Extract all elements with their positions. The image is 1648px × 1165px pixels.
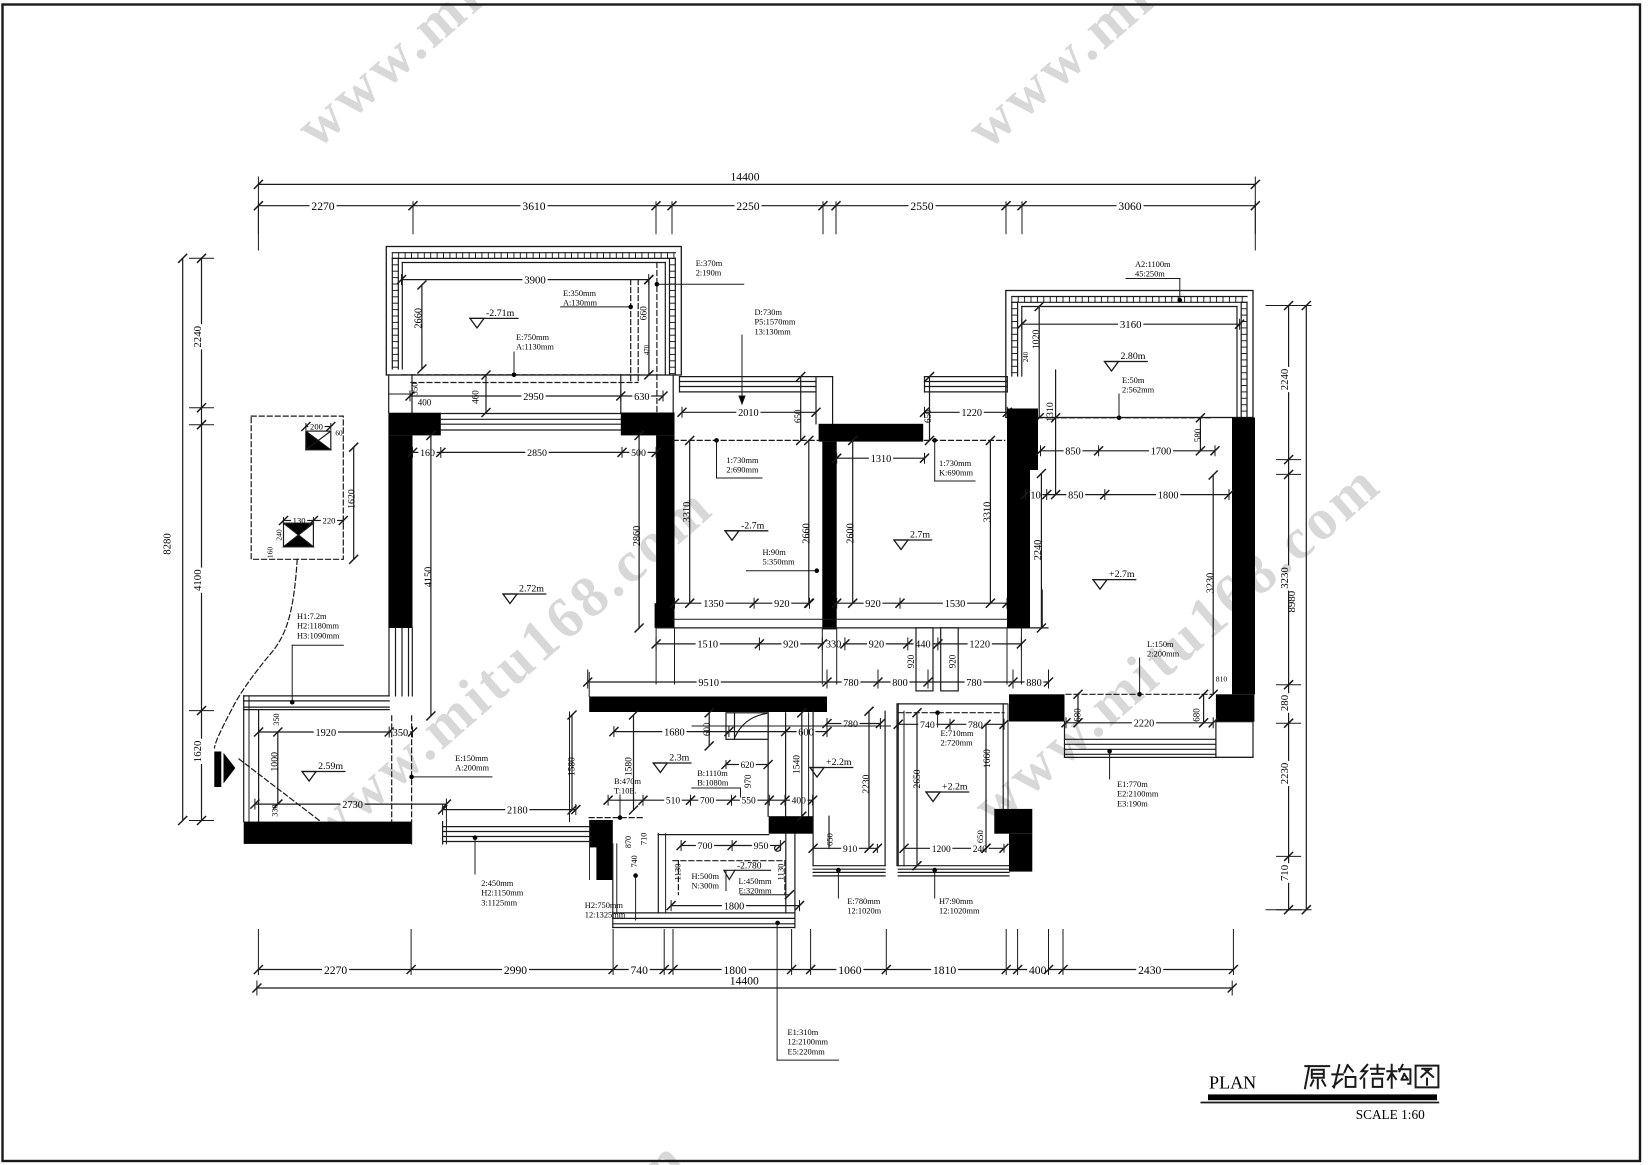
svg-text:1200: 1200 <box>932 845 951 855</box>
svg-text:2:690mm: 2:690mm <box>726 466 759 475</box>
svg-text:1220: 1220 <box>961 408 982 419</box>
svg-text:1620: 1620 <box>346 489 357 509</box>
svg-text:L:150m: L:150m <box>1147 640 1174 649</box>
svg-text:3900: 3900 <box>524 275 546 287</box>
svg-text:920: 920 <box>774 599 789 610</box>
svg-text:3230: 3230 <box>1205 573 1216 594</box>
svg-text:1060: 1060 <box>838 964 861 977</box>
svg-text:N:300m: N:300m <box>692 882 720 891</box>
svg-text:2.7m: 2.7m <box>910 530 930 541</box>
svg-text:1130: 1130 <box>673 864 683 881</box>
svg-text:45:250m: 45:250m <box>1135 270 1165 279</box>
svg-text:680: 680 <box>1072 708 1082 722</box>
svg-text:2730: 2730 <box>342 800 363 811</box>
svg-text:780: 780 <box>843 678 858 689</box>
svg-text:A:130mm: A:130mm <box>563 299 597 308</box>
svg-text:330: 330 <box>826 640 841 651</box>
svg-text:12:1325mm: 12:1325mm <box>585 911 626 920</box>
svg-text:780: 780 <box>966 678 981 689</box>
svg-text:970: 970 <box>743 774 753 788</box>
svg-text:1680: 1680 <box>664 727 685 738</box>
svg-text:920: 920 <box>869 640 884 651</box>
svg-text:1510: 1510 <box>697 640 718 651</box>
svg-text:12:1020m: 12:1020m <box>847 907 881 916</box>
svg-text:4100: 4100 <box>192 569 204 591</box>
svg-text:1620: 1620 <box>192 741 204 763</box>
svg-text:950: 950 <box>754 841 769 852</box>
svg-text:5:350mm: 5:350mm <box>763 558 796 567</box>
svg-text:400: 400 <box>418 397 432 407</box>
svg-text:-2.7m: -2.7m <box>741 520 765 531</box>
svg-text:470: 470 <box>644 344 651 355</box>
svg-text:2010: 2010 <box>738 408 759 419</box>
svg-text:E:50m: E:50m <box>1122 376 1145 385</box>
svg-text:240: 240 <box>973 845 988 855</box>
svg-text:580: 580 <box>1193 428 1203 442</box>
svg-text:E5:220mm: E5:220mm <box>788 1047 826 1056</box>
svg-text:1700: 1700 <box>1151 447 1172 458</box>
svg-text:3230: 3230 <box>1279 567 1291 589</box>
svg-text:3160: 3160 <box>1120 319 1142 331</box>
svg-text:220: 220 <box>323 516 336 526</box>
svg-text:1580: 1580 <box>624 757 634 776</box>
svg-text:2650: 2650 <box>913 769 923 788</box>
svg-text:D:730m: D:730m <box>755 308 783 317</box>
svg-text:740: 740 <box>631 964 649 977</box>
svg-text:-2.71m: -2.71m <box>486 308 515 319</box>
svg-text:A:1130mm: A:1130mm <box>516 343 554 352</box>
svg-text:2990: 2990 <box>504 964 527 977</box>
svg-text:2240: 2240 <box>192 326 204 348</box>
svg-text:E2:2100mm: E2:2100mm <box>1117 790 1159 799</box>
svg-text:2660: 2660 <box>801 523 812 544</box>
svg-text:1800: 1800 <box>724 901 745 912</box>
svg-text:13:130mm: 13:130mm <box>755 327 792 336</box>
svg-text:2.80m: 2.80m <box>1121 351 1146 362</box>
svg-text:L:450mm: L:450mm <box>739 877 773 886</box>
svg-text:1020: 1020 <box>1031 329 1042 349</box>
svg-text:+2.2m: +2.2m <box>826 757 852 768</box>
svg-text:1530: 1530 <box>945 599 966 610</box>
svg-text:3310: 3310 <box>982 502 993 523</box>
svg-text:2600: 2600 <box>845 523 856 544</box>
svg-text:A:200mm: A:200mm <box>455 764 489 773</box>
svg-text:810: 810 <box>1216 675 1228 684</box>
svg-text:B:1110m: B:1110m <box>697 769 728 778</box>
svg-text:2.59m: 2.59m <box>318 761 343 772</box>
svg-text:14400: 14400 <box>731 171 760 184</box>
svg-text:E3:190m: E3:190m <box>1117 799 1148 808</box>
svg-text:510: 510 <box>666 797 681 807</box>
svg-text:3:1125mm: 3:1125mm <box>481 898 517 907</box>
svg-text:3610: 3610 <box>522 200 545 213</box>
svg-text:240: 240 <box>1023 351 1030 362</box>
svg-text:330: 330 <box>270 804 279 816</box>
svg-text:850: 850 <box>1068 490 1083 501</box>
svg-text:E:750mm: E:750mm <box>516 333 550 342</box>
svg-text:1580: 1580 <box>568 757 578 776</box>
svg-text:160: 160 <box>265 547 274 559</box>
svg-text:440: 440 <box>915 640 930 651</box>
svg-text:2850: 2850 <box>527 448 547 459</box>
svg-text:P5:1570mm: P5:1570mm <box>755 318 796 327</box>
svg-text:740: 740 <box>630 855 639 867</box>
svg-text:1350: 1350 <box>703 599 724 610</box>
svg-text:2240: 2240 <box>1279 369 1291 391</box>
svg-text:310: 310 <box>1025 490 1040 501</box>
svg-text:740: 740 <box>920 720 935 731</box>
svg-text:1130: 1130 <box>776 864 786 881</box>
svg-text:650: 650 <box>975 830 985 843</box>
svg-text:650: 650 <box>923 409 933 423</box>
svg-text:400: 400 <box>792 797 807 807</box>
svg-text:K:690mm: K:690mm <box>939 469 973 478</box>
svg-text:700: 700 <box>700 797 715 807</box>
svg-text:2:562mm: 2:562mm <box>1122 386 1155 395</box>
svg-text:920: 920 <box>906 654 916 668</box>
svg-text:630: 630 <box>634 392 649 403</box>
svg-text:780: 780 <box>843 719 858 730</box>
svg-text:700: 700 <box>698 841 713 852</box>
svg-text:650: 650 <box>825 833 835 846</box>
svg-text:800: 800 <box>892 678 907 689</box>
svg-text:350: 350 <box>393 728 408 739</box>
svg-text:550: 550 <box>741 797 756 807</box>
svg-text:H2:1180mm: H2:1180mm <box>297 622 340 631</box>
svg-text:1000: 1000 <box>269 752 280 772</box>
svg-text:E:350mm: E:350mm <box>563 289 597 298</box>
svg-text:2180: 2180 <box>507 805 528 816</box>
svg-text:H3:1090mm: H3:1090mm <box>297 631 340 640</box>
svg-text:850: 850 <box>1065 447 1080 458</box>
svg-text:460: 460 <box>471 390 481 404</box>
svg-text:1:730mm: 1:730mm <box>939 459 972 468</box>
svg-text:12:1020mm: 12:1020mm <box>939 907 980 916</box>
svg-text:60: 60 <box>335 428 343 437</box>
svg-text:160: 160 <box>420 448 435 459</box>
svg-text:600: 600 <box>798 727 813 738</box>
svg-text:2660: 2660 <box>413 308 424 329</box>
svg-text:2230: 2230 <box>1279 763 1291 785</box>
svg-text:2860: 2860 <box>632 526 643 547</box>
svg-text:650: 650 <box>793 409 803 423</box>
svg-text:920: 920 <box>865 599 880 610</box>
svg-text:870: 870 <box>624 836 633 848</box>
svg-text:1:730mm: 1:730mm <box>726 456 759 465</box>
svg-text:2:720mm: 2:720mm <box>941 739 974 748</box>
svg-text:400: 400 <box>1029 964 1047 977</box>
svg-text:9510: 9510 <box>698 678 719 689</box>
svg-text:2270: 2270 <box>324 964 347 977</box>
svg-text:910: 910 <box>843 845 858 855</box>
svg-text:H2:1150mm: H2:1150mm <box>481 889 524 898</box>
svg-text:2:190m: 2:190m <box>696 269 722 278</box>
svg-text:2220: 2220 <box>1134 719 1155 730</box>
svg-text:B:1080m: B:1080m <box>697 779 729 788</box>
svg-text:600: 600 <box>702 722 712 736</box>
svg-text:2230: 2230 <box>862 774 872 793</box>
svg-text:E:710mm: E:710mm <box>941 729 975 738</box>
svg-text:2430: 2430 <box>1138 964 1161 977</box>
svg-text:660: 660 <box>640 306 650 321</box>
svg-text:SCALE 1:60: SCALE 1:60 <box>1356 1107 1425 1122</box>
svg-text:1660: 1660 <box>983 749 993 768</box>
svg-text:130: 130 <box>293 516 306 526</box>
svg-text:T:10E.: T:10E. <box>614 787 637 796</box>
svg-text:4150: 4150 <box>423 567 434 588</box>
svg-text:920: 920 <box>948 654 958 668</box>
svg-text:14400: 14400 <box>730 975 759 988</box>
svg-text:2:200mm: 2:200mm <box>1147 650 1180 659</box>
svg-text:240: 240 <box>275 529 284 541</box>
svg-text:920: 920 <box>783 640 798 651</box>
svg-text:1310: 1310 <box>871 454 892 465</box>
svg-text:+2.7m: +2.7m <box>1109 569 1135 580</box>
svg-text:E:150mm: E:150mm <box>455 754 489 763</box>
svg-text:1810: 1810 <box>933 964 956 977</box>
svg-text:PLAN: PLAN <box>1209 1073 1256 1093</box>
svg-text:E1:310m: E1:310m <box>788 1028 819 1037</box>
svg-text:E1:770m: E1:770m <box>1117 780 1148 789</box>
svg-text:620: 620 <box>741 760 755 770</box>
svg-text:2250: 2250 <box>736 200 759 213</box>
svg-text:E:780mm: E:780mm <box>847 897 881 906</box>
svg-text:H:500m: H:500m <box>692 872 720 881</box>
svg-text:350: 350 <box>272 713 281 725</box>
svg-text:2240: 2240 <box>1033 540 1044 561</box>
svg-text:B:470m: B:470m <box>614 777 641 786</box>
svg-text:280: 280 <box>1279 695 1291 711</box>
svg-text:2270: 2270 <box>311 200 334 213</box>
svg-text:2550: 2550 <box>910 200 933 213</box>
svg-text:710: 710 <box>639 833 648 845</box>
svg-text:12:2100mm: 12:2100mm <box>788 1038 829 1047</box>
svg-text:8980: 8980 <box>1286 591 1298 613</box>
svg-text:710: 710 <box>1279 865 1291 881</box>
svg-text:H1:7.2m: H1:7.2m <box>297 612 327 621</box>
svg-text:1920: 1920 <box>316 728 337 739</box>
svg-text:2950: 2950 <box>523 392 544 403</box>
svg-text:3060: 3060 <box>1118 200 1141 213</box>
svg-text:200: 200 <box>310 422 323 432</box>
svg-text:2.72m: 2.72m <box>519 584 544 595</box>
svg-text:1800: 1800 <box>1158 490 1179 501</box>
svg-text:E:370m: E:370m <box>696 259 723 268</box>
svg-text:680: 680 <box>1191 708 1201 722</box>
svg-text:H:90m: H:90m <box>763 548 787 557</box>
svg-text:1540: 1540 <box>792 755 802 774</box>
svg-text:8280: 8280 <box>162 533 174 555</box>
svg-text:A2:1100m: A2:1100m <box>1135 260 1171 269</box>
svg-text:2.3m: 2.3m <box>669 753 689 764</box>
svg-text:1310: 1310 <box>1045 402 1056 422</box>
svg-text:H7:90mm: H7:90mm <box>939 897 973 906</box>
svg-text:3310: 3310 <box>682 502 693 523</box>
svg-text:880: 880 <box>1026 678 1041 689</box>
svg-text:1220: 1220 <box>969 640 990 651</box>
svg-text:H2:750mm: H2:750mm <box>585 901 624 910</box>
svg-text:+2.2m: +2.2m <box>942 782 968 793</box>
svg-text:2:450mm: 2:450mm <box>481 879 514 888</box>
svg-text:350: 350 <box>410 383 420 396</box>
